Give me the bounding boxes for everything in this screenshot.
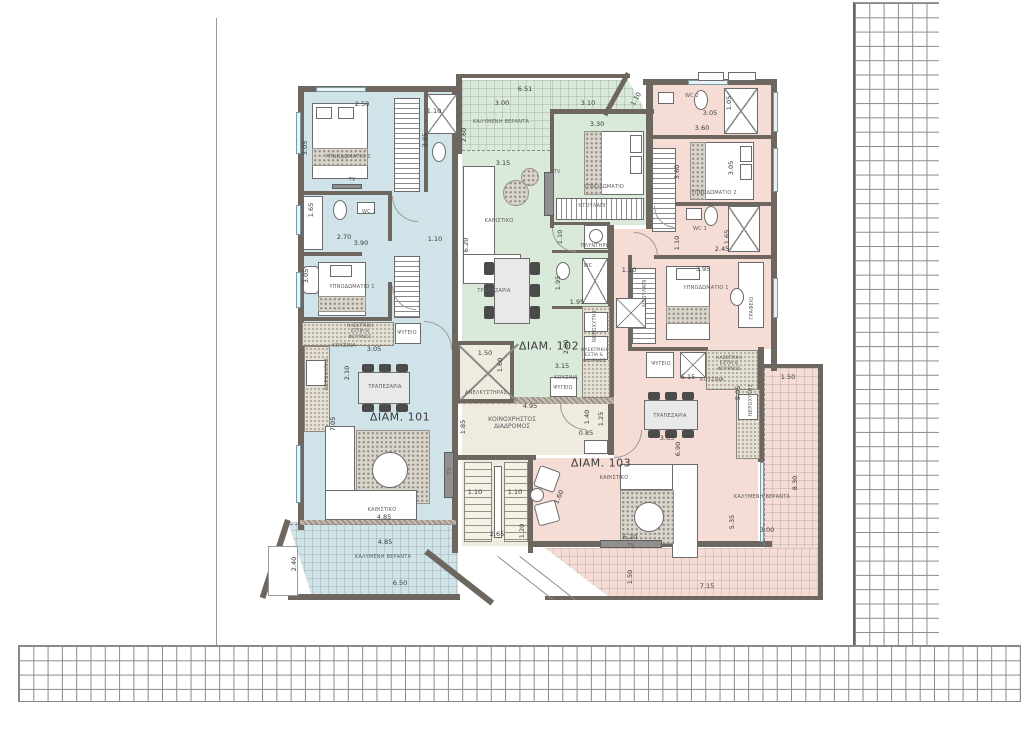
room-label: ΥΠΝΟΔΩΜΑΤΙΟ 1 <box>329 284 374 290</box>
dimension-label: 5.15 <box>681 373 695 381</box>
dimension-label: 7.15 <box>700 582 714 590</box>
dimension-label: 1.25 <box>597 412 605 426</box>
dimension-label: 3.15 <box>555 362 569 370</box>
dimension-label: 2.70 <box>337 233 351 241</box>
dimension-label: 1.05 <box>725 96 733 110</box>
dimension-label: 1.85 <box>459 420 467 434</box>
dimension-label: 3.65 <box>660 434 674 442</box>
dimension-label: 2.50 <box>355 100 369 108</box>
dimension-label: 3.30 <box>590 120 604 128</box>
room-label: ΗΛΕΚΤΡΙΚΗ ΕΣΤΙΑ & ΦΟΥΡΝΟΣ <box>342 324 378 340</box>
dimension-label: 1.50 <box>781 373 795 381</box>
room-label: WC 2 <box>685 93 699 99</box>
dimension-label: 3.90 <box>354 239 368 247</box>
dimension-label: 4.85 <box>377 513 391 521</box>
dimension-label: 1.10 <box>508 488 522 496</box>
room-label: ΗΛΕΚΤΡΙΚΗ ΕΣΤΙΑ & ΦΟΥΡΝΟΣ <box>711 356 747 372</box>
dimension-label: 3.60 <box>673 165 681 179</box>
room-label: ΚΑΘΙΣΤΙΚΟ <box>485 218 514 224</box>
dimension-label: 2.45 <box>715 245 729 253</box>
dimension-label: 1.10 <box>427 107 441 115</box>
dimension-label: 1.40 <box>583 410 591 424</box>
room-label: ΝΤΟΥΛΑΠΙ <box>642 279 648 306</box>
dimension-label: 3.15 <box>496 159 510 167</box>
room-label: ΝΕΡΟΧΥΤΗΣ <box>592 310 598 342</box>
room-label: ΝΕΡΟΧΥΤΗΣ <box>748 384 754 416</box>
room-label: WC 1 <box>362 209 376 215</box>
dimension-label: 1.65 <box>307 203 315 217</box>
dimension-label: 2.80 <box>562 340 570 354</box>
dimension-label: 3.95 <box>696 265 710 273</box>
dimension-label: 1.65 <box>723 230 731 244</box>
room-label: ΤΡΑΠΕΖΑΡΙΑ <box>477 288 510 294</box>
dimension-label: 8.30 <box>791 476 799 490</box>
dimension-label: 1.10 <box>428 235 442 243</box>
room-label: ΥΠΝΟΔΩΜΑΤΙΟ 1 <box>683 285 728 291</box>
dimension-label: 1.10 <box>468 488 482 496</box>
room-label: ΨΥΓΕΙΟ <box>553 385 573 391</box>
dimension-label: 6.20 <box>623 533 637 541</box>
room-label: ΝΕΡΟΧΥΤΗΣ <box>324 358 330 390</box>
room-label: TV <box>447 468 453 475</box>
dimension-label: 0.85 <box>579 429 593 437</box>
dimension-label: 1.10 <box>622 266 636 274</box>
dimension-label: 2.65 <box>490 530 504 538</box>
room-label: ΤΡΑΠΕΖΑΡΙΑ <box>368 384 401 390</box>
dimension-label: 3.00 <box>760 526 774 534</box>
apartment-label: ΔΙΑΜ. 102 <box>519 340 579 353</box>
room-label: ΑΝΕΛΚΥΣΤΗΡΑΣ <box>465 390 507 396</box>
room-label: WC <box>584 263 593 269</box>
dimension-label: 1.95 <box>570 298 584 306</box>
room-label: ΚΟΥΖΙΝΑ <box>554 375 578 381</box>
dimension-label: 1.95 <box>554 276 562 290</box>
room-label: ΨΥΓΕΙΟ <box>651 361 671 367</box>
room-label: ΥΠΝΟΔΩΜΑΤΙΟ 2 <box>691 190 736 196</box>
dimension-label: 1.10 <box>556 230 564 244</box>
dimension-label: 6.50 <box>393 579 407 587</box>
room-label: WC 1 <box>693 226 707 232</box>
dimension-label: 1.60 <box>496 358 504 372</box>
dimension-label: 3.00 <box>495 99 509 107</box>
labels-layer: ΔΙΑΜ. 101ΔΙΑΜ. 102ΔΙΑΜ. 103ΥΠΝΟΔΩΜΑΤΙΟ 2… <box>0 0 1021 749</box>
dimension-label: 3.05 <box>367 345 381 353</box>
dimension-label: 1.10 <box>629 91 643 108</box>
dimension-label: 2.40 <box>290 557 298 571</box>
dimension-label: 4.85 <box>378 538 392 546</box>
room-label: ΥΠΝΟΔΩΜΑΤΙΟ 2 <box>325 154 370 160</box>
dimension-label: 6.20 <box>462 238 470 252</box>
dimension-label: 3.10 <box>581 99 595 107</box>
room-label: ΚΑΛΥΜΕΝΗ ΒΕΡΑΝΤΑ <box>355 554 411 560</box>
dimension-label: 2.60 <box>460 128 468 142</box>
dimension-label: 1.20 <box>518 524 526 538</box>
dimension-label: 2.10 <box>343 366 351 380</box>
dimension-label: 3.05 <box>727 161 735 175</box>
floor-plan-drawing: ΔΙΑΜ. 101ΔΙΑΜ. 102ΔΙΑΜ. 103ΥΠΝΟΔΩΜΑΤΙΟ 2… <box>0 0 1021 749</box>
room-label: ΗΛΕΚΤΡΙΚΗ ΕΣΤΙΑ & ΦΟΥΡΝΟΣ <box>576 348 612 364</box>
dimension-label: 1.50 <box>626 570 634 584</box>
room-label: ΚΑΘΙΣΤΙΚΟ <box>600 475 629 481</box>
room-label: ΥΠΝΟΔΩΜΑΤΙΟ <box>584 184 624 190</box>
dimension-label: 3.05 <box>302 269 310 283</box>
room-label: ΨΥΓΕΙΟ <box>397 330 417 336</box>
room-label: ΚΑΛΥΜΕΝΗ ΒΕΡΑΝΤΑ <box>734 494 790 500</box>
apartment-label: ΔΙΑΜ. 103 <box>571 457 631 470</box>
room-label: ΓΡΑΦΕΙΟ <box>749 296 755 319</box>
dimension-label: 6.51 <box>518 85 532 93</box>
dimension-label: 7.05 <box>329 417 337 431</box>
dimension-label: 4.95 <box>523 402 537 410</box>
room-label: TV <box>628 543 635 549</box>
room-label: ΚΟΥΖΙΝΑ <box>700 377 724 383</box>
room-label: ΚΑΛΥΜΕΝΗ ΒΕΡΑΝΤΑ <box>473 119 529 125</box>
room-label: ΝΤΟΥΛΑΠΙ <box>578 203 605 209</box>
room-label: TV <box>554 169 561 175</box>
room-label: ΠΛΥΝΤΗΡΙΟ <box>580 243 611 249</box>
apartment-label: ΔΙΑΜ. 101 <box>370 411 430 424</box>
dimension-label: 3.05 <box>301 141 309 155</box>
dimension-label: 1.50 <box>478 349 492 357</box>
dimension-label: 1.10 <box>673 236 681 250</box>
dimension-label: 5.05 <box>734 386 742 400</box>
room-label: TV <box>349 177 356 183</box>
dimension-label: 6.90 <box>674 442 682 456</box>
dimension-label: 5.35 <box>728 515 736 529</box>
room-label: ΚΟΙΝΟΧΡΗΣΤΟΣ ΔΙΑΔΡΟΜΟΣ <box>479 416 545 430</box>
room-label: ΚΟΥΖΙΝΑ <box>332 343 356 349</box>
dimension-label: 2.85 <box>421 133 429 147</box>
dimension-label: 3.60 <box>695 124 709 132</box>
dimension-label: 1.60 <box>552 489 565 506</box>
room-label: ΤΡΑΠΕΖΑΡΙΑ <box>653 413 686 419</box>
dimension-label: 3.05 <box>703 109 717 117</box>
